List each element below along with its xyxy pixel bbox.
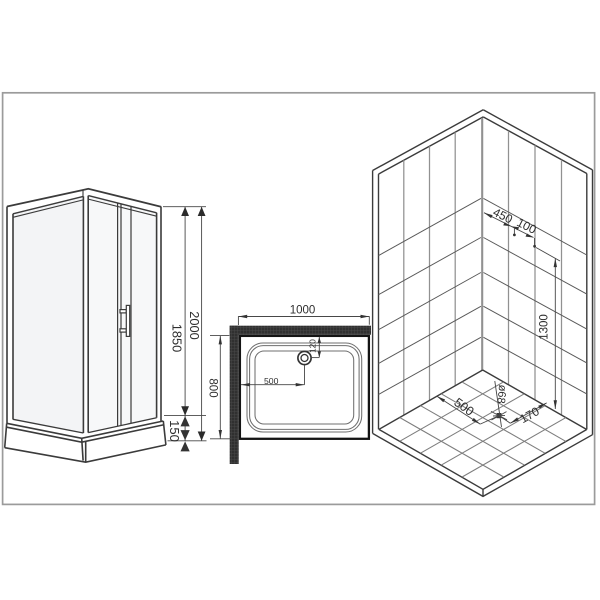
svg-text:1850: 1850 [170, 324, 185, 352]
svg-text:800: 800 [207, 378, 219, 397]
svg-text:ø68: ø68 [494, 384, 508, 404]
svg-text:1300: 1300 [539, 314, 551, 340]
svg-text:500: 500 [264, 376, 279, 386]
svg-text:2000: 2000 [187, 311, 202, 339]
svg-text:1000: 1000 [290, 304, 316, 316]
svg-text:120: 120 [308, 339, 317, 353]
svg-text:150: 150 [167, 420, 182, 442]
